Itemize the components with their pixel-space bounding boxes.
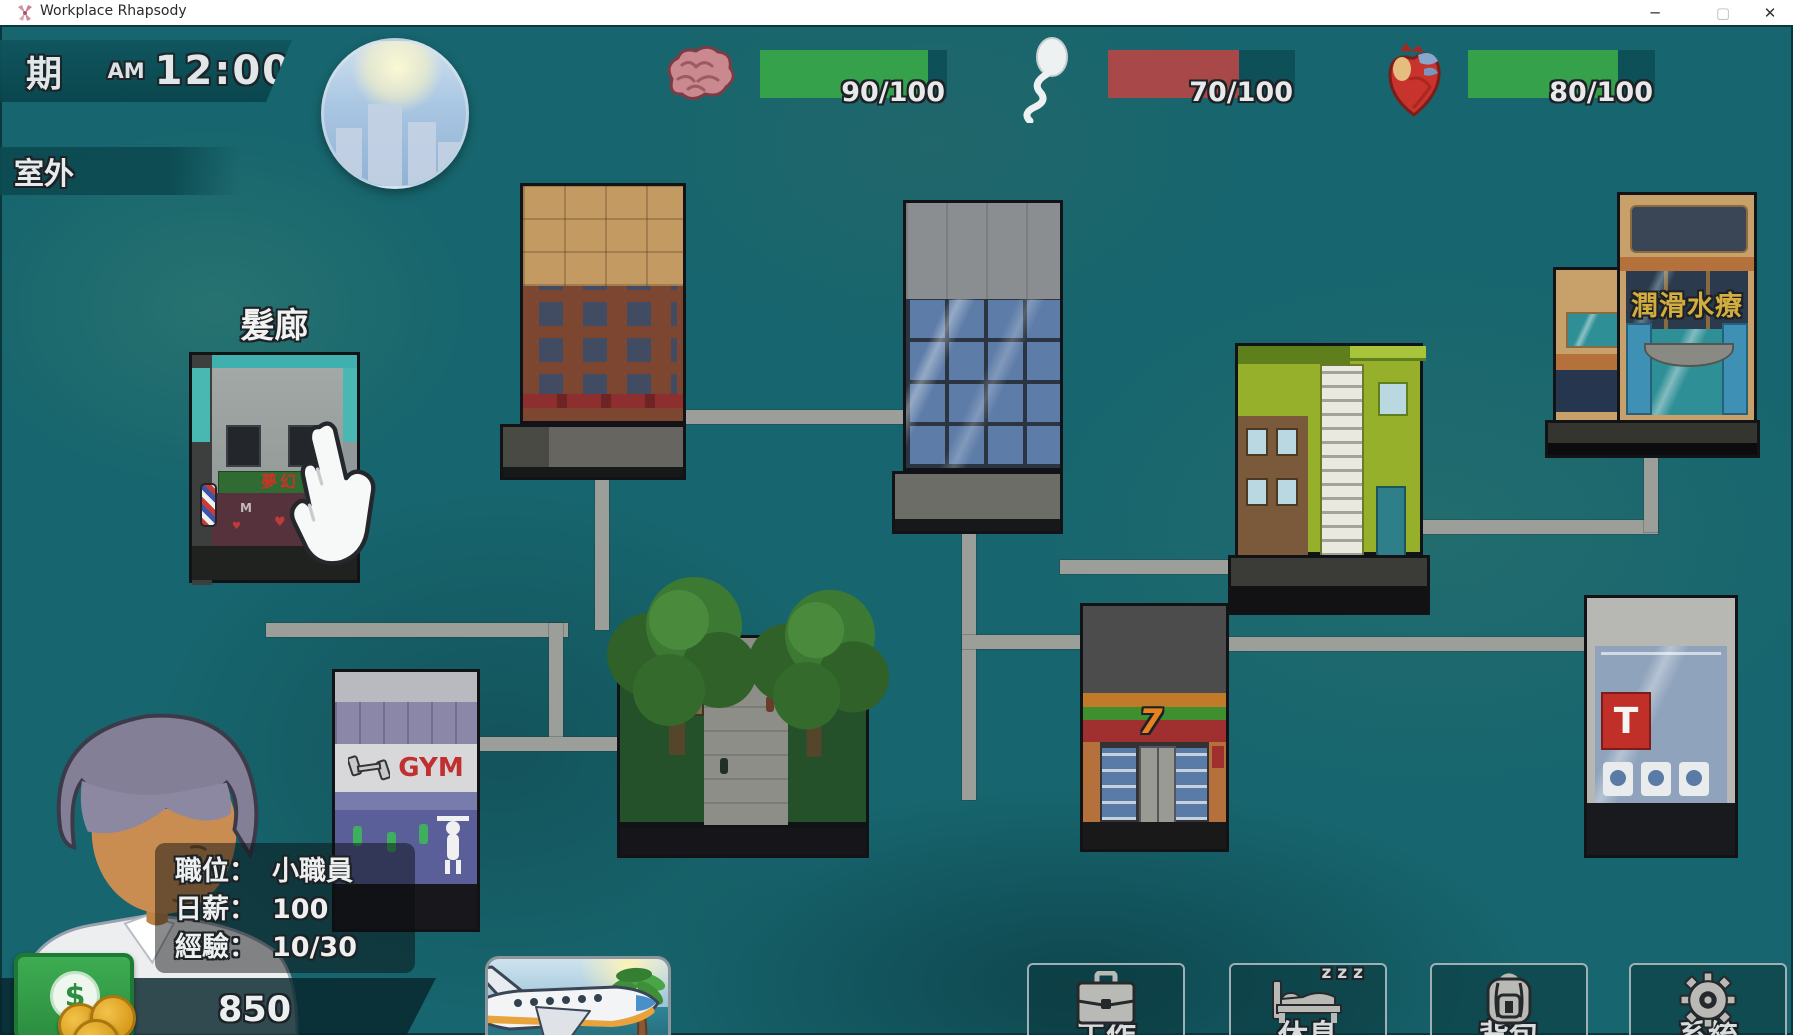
greenhouse-window <box>1378 382 1408 416</box>
tstore-machine <box>1603 762 1633 796</box>
info-value: 小職員 <box>272 853 353 891</box>
apartment-base-lip <box>503 467 683 477</box>
building-apartment[interactable] <box>500 183 686 480</box>
greenhouse-door <box>1376 486 1406 562</box>
skyline-building <box>438 142 460 186</box>
gear-icon <box>1679 971 1737 1029</box>
salon-door-mark: M <box>240 501 252 515</box>
road-segment <box>962 635 1087 649</box>
spa-base-lip <box>1548 443 1757 455</box>
sperm-icon <box>1010 37 1074 123</box>
building-park[interactable] <box>617 635 869 858</box>
greenhouse-window <box>1276 478 1298 506</box>
office-top-facade <box>906 203 1060 299</box>
stat-bar-health: 80/100 <box>1468 50 1655 98</box>
work-button[interactable]: 工作 <box>1027 963 1185 1035</box>
stat-bar-vitality: 70/100 <box>1108 50 1295 98</box>
time-label: 12:00 <box>155 48 292 94</box>
player-info-panel: 職位：小職員 日薪：100 經驗：10/30 <box>155 843 415 973</box>
road-segment <box>549 623 563 745</box>
greenhouse-window <box>1246 478 1268 506</box>
heart-icon <box>1380 39 1448 119</box>
location-banner: 室外 <box>0 147 240 195</box>
spa-band <box>1620 257 1754 271</box>
building-green-house[interactable] <box>1228 343 1430 640</box>
spa-sign: 潤滑水療 <box>1617 284 1757 323</box>
money-amount: 850 <box>218 990 291 1030</box>
apartment-top-facade <box>523 186 683 286</box>
minimize-button[interactable]: ─ <box>1632 0 1678 25</box>
park-tree <box>599 565 759 775</box>
road-segment <box>1644 450 1658 532</box>
salon-window <box>226 425 261 467</box>
store-doors <box>1139 746 1176 824</box>
maximize-button[interactable]: ▢ <box>1700 0 1746 25</box>
greenhouse-roof-right <box>1350 346 1426 361</box>
park-base <box>617 825 869 858</box>
skyline-building <box>368 104 402 186</box>
gym-sign-band: GYM <box>335 744 477 792</box>
heart-decal-icon: ♥ <box>232 521 241 532</box>
skyline-building <box>408 122 436 186</box>
store-base <box>1083 822 1226 849</box>
barber-pole-icon <box>200 483 217 527</box>
datetime-banner: 星期一 AM 12:00 <box>0 40 292 102</box>
backpack-button[interactable]: 背包 <box>1430 963 1588 1035</box>
info-label: 日薪： <box>175 891 256 929</box>
spa-annex-window <box>1566 312 1620 348</box>
bed-icon <box>1269 971 1347 1027</box>
greenhouse-shutter-column <box>1320 364 1364 558</box>
gym-lavender-band <box>335 702 477 744</box>
gym-person <box>419 824 428 844</box>
tstore-machine-door <box>1648 770 1664 786</box>
building-label-hair-salon: 髮廊 <box>189 298 360 347</box>
store-window <box>1102 748 1136 820</box>
stat-value: 90/100 <box>841 77 945 108</box>
greenhouse-brown-wing <box>1238 416 1308 558</box>
info-label: 職位： <box>175 853 256 891</box>
road-segment <box>1060 560 1240 574</box>
travel-button[interactable] <box>485 956 671 1035</box>
gym-lifter-figure <box>433 810 473 876</box>
spa-entrance-glass <box>1652 329 1722 415</box>
info-value: 10/30 <box>272 929 357 967</box>
greenhouse-window <box>1246 428 1268 456</box>
spa-annex-lower <box>1556 370 1626 412</box>
greenhouse-roof <box>1238 346 1350 364</box>
store-front-pillar <box>1083 742 1100 828</box>
game-window: Workplace Rhapsody ─ ▢ ✕ 髮廊 夢幻 M <box>0 0 1793 1035</box>
store-front <box>1083 742 1226 828</box>
store-seven-logo: 7 <box>1139 702 1163 742</box>
road-segment <box>1420 520 1658 534</box>
building-spa[interactable]: 潤滑水療 <box>1545 192 1760 458</box>
tstore-machine-door <box>1610 770 1626 786</box>
tstore-machine <box>1641 762 1671 796</box>
tstore-base <box>1587 803 1735 855</box>
road-segment <box>962 505 976 800</box>
info-label: 經驗： <box>175 929 256 967</box>
window-title: Workplace Rhapsody <box>40 3 187 19</box>
greenhouse-window <box>1276 428 1298 456</box>
rest-button[interactable]: z z z 休息 <box>1229 963 1387 1035</box>
spa-annex-band <box>1556 354 1626 370</box>
tstore-machine-door <box>1686 770 1702 786</box>
salon-roof-trim <box>192 355 357 368</box>
park-tree <box>741 577 891 777</box>
title-bar: Workplace Rhapsody ─ ▢ ✕ <box>0 0 1793 25</box>
apartment-awnings <box>523 394 683 408</box>
spa-pillar <box>1722 323 1748 415</box>
system-button[interactable]: 系統 <box>1629 963 1787 1035</box>
app-icon <box>16 4 34 22</box>
stat-bar-intelligence: 90/100 <box>760 50 947 98</box>
road-segment <box>680 410 905 424</box>
road-segment <box>266 623 568 637</box>
location-label: 室外 <box>14 149 74 193</box>
road-segment <box>470 737 620 751</box>
salon-side-trim <box>192 368 210 442</box>
backpack-icon <box>1480 971 1538 1029</box>
gym-top-band <box>335 672 477 702</box>
gym-sign-text: GYM <box>398 753 463 783</box>
weather-indicator <box>321 38 469 189</box>
close-button[interactable]: ✕ <box>1747 0 1793 25</box>
stat-value: 80/100 <box>1549 77 1653 108</box>
sun-icon <box>352 38 442 113</box>
pointer-hand-cursor <box>274 411 394 575</box>
heart-decal-icon: ♥ <box>274 515 286 530</box>
building-t-store[interactable]: T <box>1584 595 1738 858</box>
skyline-building <box>336 128 362 186</box>
brain-icon <box>658 43 740 105</box>
store-window <box>1173 748 1207 820</box>
office-base-lip <box>895 519 1060 531</box>
office-glass-wall <box>906 299 1060 468</box>
spa-pillar <box>1626 323 1652 415</box>
spa-top-window <box>1630 205 1748 253</box>
building-office[interactable] <box>892 200 1063 534</box>
stat-value: 70/100 <box>1189 77 1293 108</box>
greenhouse-base-lip <box>1231 586 1427 612</box>
airplane-icon <box>485 961 671 1035</box>
tstore-shelf-line <box>1601 652 1721 655</box>
store-side-sign <box>1212 746 1224 768</box>
tstore-sign: T <box>1601 692 1651 750</box>
apartment-floor-bands <box>523 286 683 398</box>
game-viewport: 髮廊 夢幻 M ♥ ♥ <box>0 25 1793 1035</box>
tstore-machine <box>1679 762 1709 796</box>
info-value: 100 <box>272 891 328 929</box>
briefcase-icon <box>1073 971 1139 1027</box>
building-convenience-store[interactable]: 7 <box>1080 603 1229 852</box>
dumbbell-icon <box>348 753 390 783</box>
meridiem-label: AM <box>108 59 145 83</box>
